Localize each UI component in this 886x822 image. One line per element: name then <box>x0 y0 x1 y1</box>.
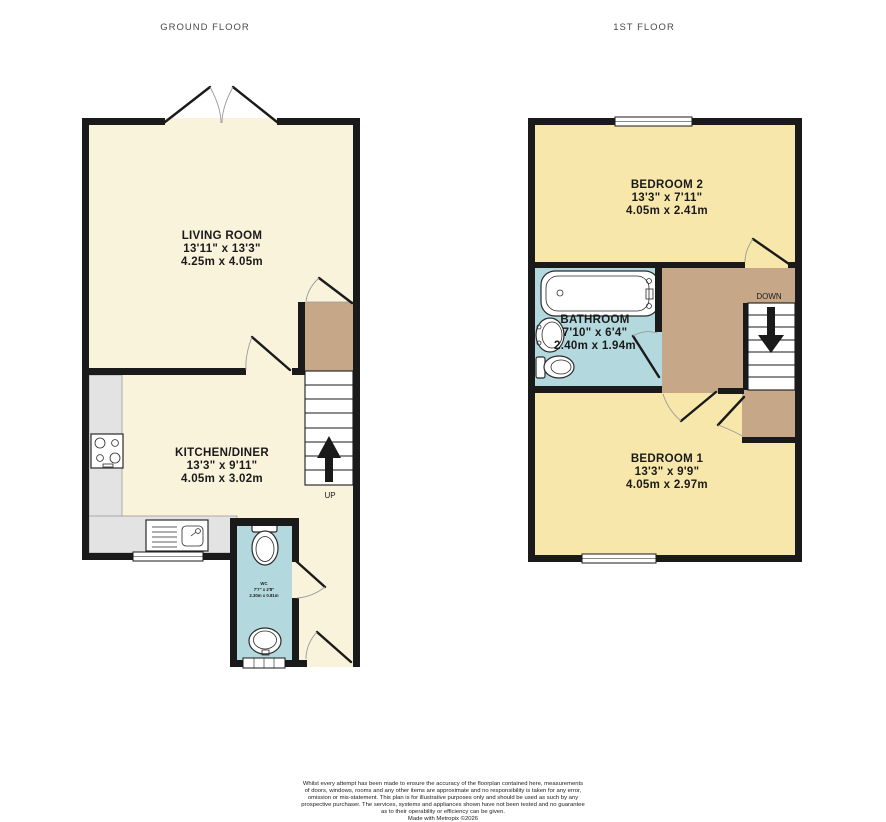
bathtub-icon <box>541 271 659 316</box>
disclaimer: Whilst every attempt has been made to en… <box>301 781 585 822</box>
floorplan-canvas: GROUND FLOOR LIVING ROOM 13'11" x 13'3" … <box>0 0 886 822</box>
stairs-down-label: DOWN <box>756 292 782 301</box>
kitchen-size-imperial: 13'3" x 9'11" <box>187 460 258 472</box>
kitchen-diner-label: KITCHEN/DINER 13'3" x 9'11" 4.05m x 3.02… <box>175 447 269 485</box>
wc-toilet-icon <box>252 523 278 565</box>
living-room-size-imperial: 13'11" x 13'3" <box>183 243 261 255</box>
bathroom-toilet-icon <box>536 356 574 378</box>
understairs-cupboard <box>305 302 353 371</box>
first-floor-title: 1ST FLOOR <box>613 22 675 33</box>
bathroom-label: BATHROOM 7'10" x 6'4" 2.40m x 1.94m <box>554 314 636 352</box>
wc-size-imperial: 7'7" x 2'8" <box>254 587 274 592</box>
bedroom2-size-imperial: 13'3" x 7'11" <box>632 192 703 204</box>
bedroom2-window <box>615 117 692 126</box>
ground-floor-plan: GROUND FLOOR LIVING ROOM 13'11" x 13'3" … <box>82 22 360 668</box>
airing-cupboard <box>742 393 795 437</box>
bedroom1-window <box>582 554 656 563</box>
wc-name: WC <box>260 581 267 586</box>
disclaimer-line-4: prospective purchaser. The services, sys… <box>301 802 585 808</box>
kitchen-size-metric: 4.05m x 3.02m <box>181 473 263 485</box>
bedroom1-name: BEDROOM 1 <box>631 453 704 465</box>
first-floor-plan: 1ST FLOOR BEDROOM 2 13'3" x 7'11" 4.05m … <box>528 22 802 563</box>
bathroom-size-metric: 2.40m x 1.94m <box>554 340 636 352</box>
floorplan-page: GROUND FLOOR LIVING ROOM 13'11" x 13'3" … <box>0 0 886 822</box>
wc-basin-icon <box>249 628 281 655</box>
stairs-up-label: UP <box>324 491 335 500</box>
wc-window <box>243 658 285 668</box>
bedroom1-label: BEDROOM 1 13'3" x 9'9" 4.05m x 2.97m <box>626 453 708 491</box>
ground-floor-title: GROUND FLOOR <box>160 22 250 33</box>
disclaimer-line-3: omission or mis-statement. This plan is … <box>308 795 578 801</box>
disclaimer-line-5: as to their operability or efficiency ca… <box>381 809 505 815</box>
kitchen-window <box>133 552 203 561</box>
french-doors <box>165 87 277 123</box>
kitchen-name: KITCHEN/DINER <box>175 447 269 459</box>
bathroom-name: BATHROOM <box>560 314 629 326</box>
wc-size-metric: 2.30m x 0.81m <box>249 593 278 598</box>
bathroom-size-imperial: 7'10" x 6'4" <box>563 327 628 339</box>
bedroom2-name: BEDROOM 2 <box>631 179 703 191</box>
staircase-up <box>305 371 353 485</box>
hob-icon <box>91 434 123 468</box>
bedroom2-size-metric: 4.05m x 2.41m <box>626 205 708 217</box>
kitchen-sink-icon <box>146 520 208 551</box>
disclaimer-line-2: of doors, windows, rooms and any other i… <box>305 788 582 794</box>
bedroom1-size-metric: 4.05m x 2.97m <box>626 479 708 491</box>
living-room-name: LIVING ROOM <box>182 230 263 242</box>
disclaimer-line-1: Whilst every attempt has been made to en… <box>303 781 583 787</box>
staircase-down <box>743 303 795 390</box>
bedroom1-size-imperial: 13'3" x 9'9" <box>635 466 700 478</box>
living-room-label: LIVING ROOM 13'11" x 13'3" 4.25m x 4.05m <box>181 230 263 268</box>
metropix-credit: Made with Metropix ©2026 <box>408 815 479 822</box>
living-room-size-metric: 4.25m x 4.05m <box>181 256 263 268</box>
bedroom2-label: BEDROOM 2 13'3" x 7'11" 4.05m x 2.41m <box>626 179 708 217</box>
